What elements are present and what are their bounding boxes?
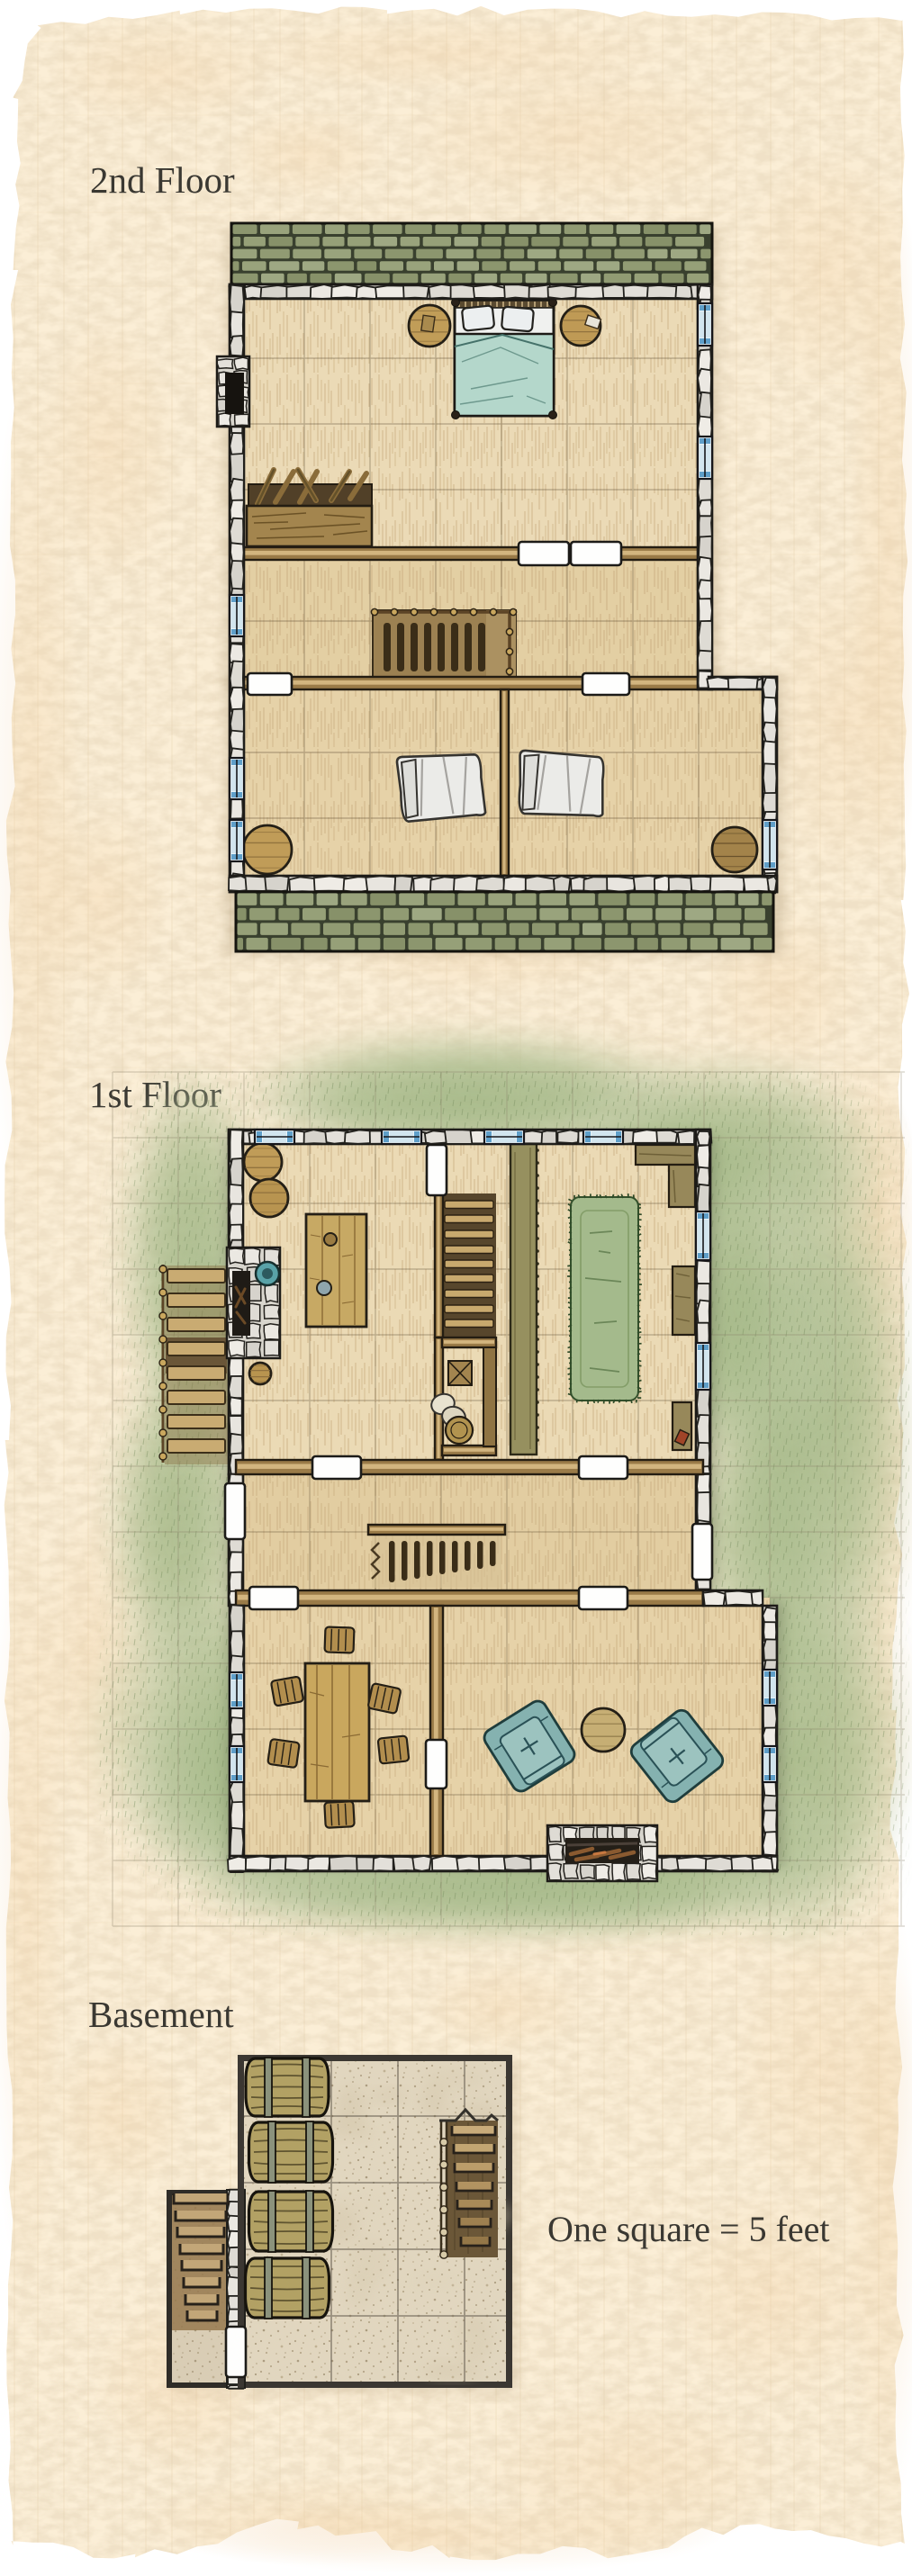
svg-text:2nd Floor: 2nd Floor: [90, 159, 235, 201]
svg-text:Basement: Basement: [88, 1994, 234, 2035]
svg-text:One square = 5 feet: One square = 5 feet: [547, 2209, 830, 2249]
